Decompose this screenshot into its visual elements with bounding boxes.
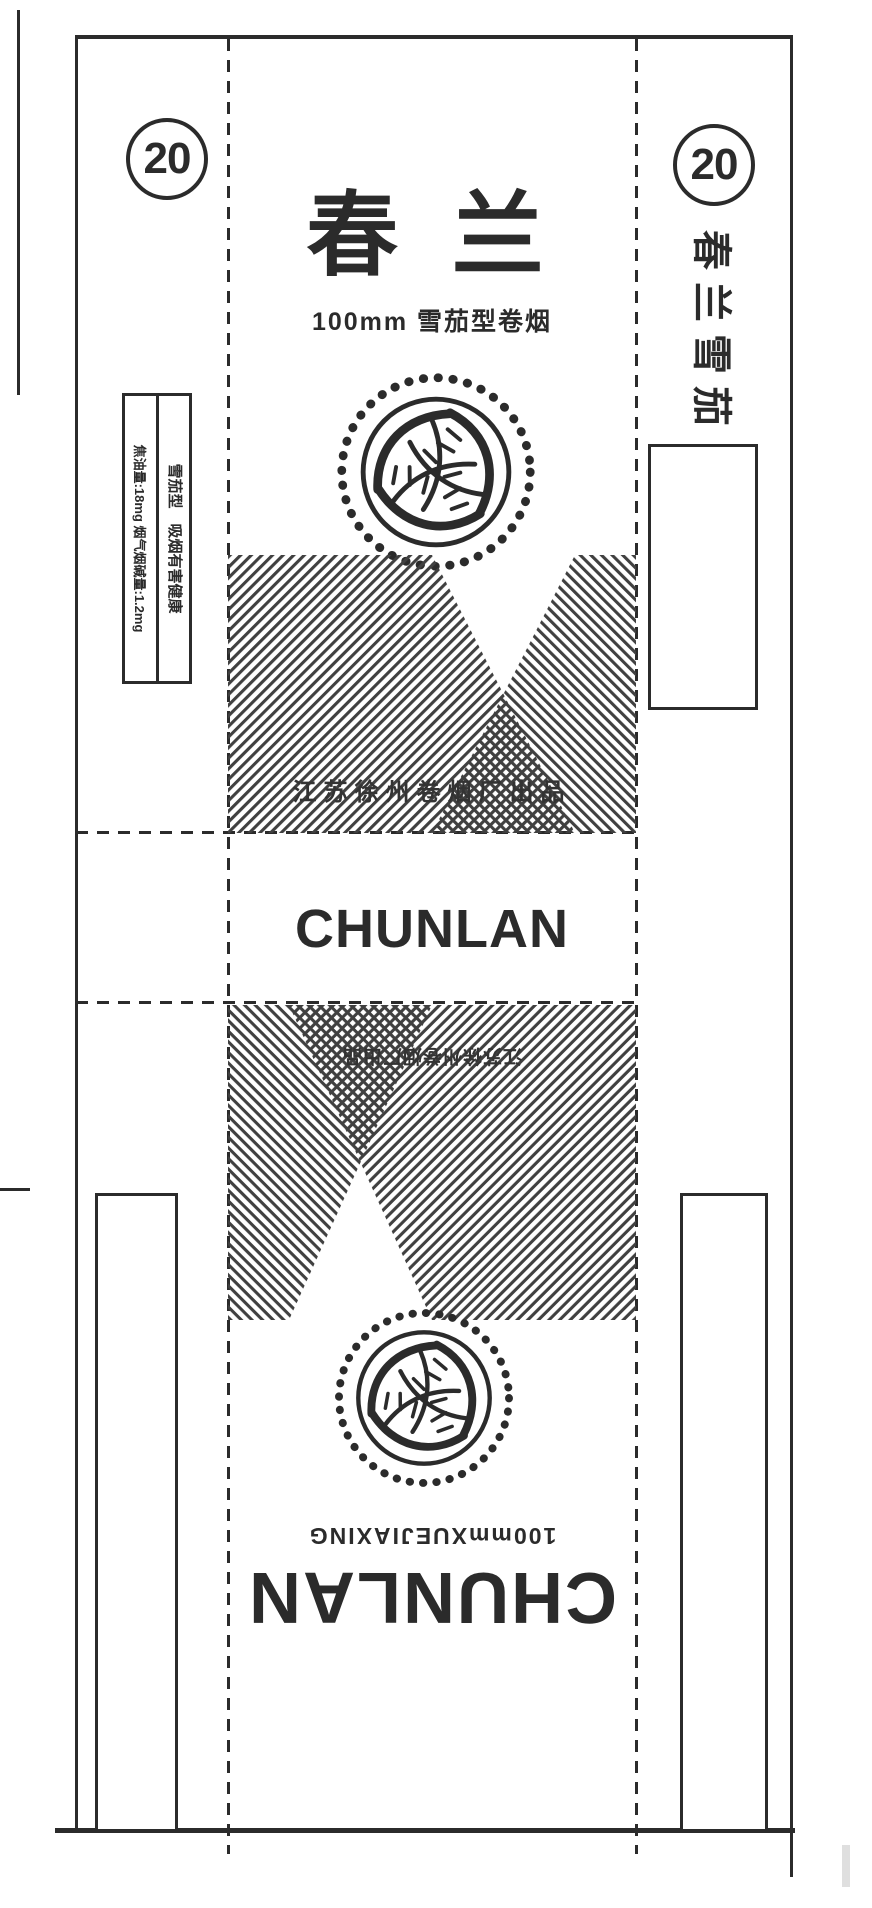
- fold-line-lower: [76, 1001, 636, 1004]
- left-trim-mark: [17, 10, 20, 395]
- package-dieline-scan: 20 20 春 兰 100mm 雪茄型卷烟: [0, 0, 872, 1908]
- scan-smudge: [842, 1845, 850, 1887]
- count-roundel-right: 20: [673, 124, 755, 206]
- left-cut-mark: [0, 1188, 30, 1191]
- bottom-panel-brand: CHUNLAN: [228, 898, 636, 960]
- spec-line-cn: 100mm 雪茄型卷烟: [228, 302, 636, 338]
- right-border: [790, 35, 793, 1877]
- tar-info-column: 焦油量:18mg 烟气烟碱量:1.2mg: [125, 399, 153, 678]
- brand-title-cn: 春 兰: [228, 188, 636, 285]
- orchid-emblem-top: [334, 370, 538, 574]
- orchid-emblem-bottom: [332, 1306, 516, 1490]
- side-flap-right: [680, 1193, 768, 1832]
- side-brand-vertical: 春兰雪茄: [688, 230, 734, 438]
- pack-count-right: 20: [691, 140, 738, 190]
- back-brand-title: CHUNLAN: [228, 1556, 636, 1638]
- back-spec-line: 100mmXUEJIAXING: [228, 1522, 636, 1549]
- top-border: [75, 35, 793, 39]
- warning-type-column: 雪茄型 吸烟有害健康: [159, 399, 189, 678]
- left-border: [75, 35, 78, 1832]
- stamp-area-rect: [648, 444, 758, 710]
- side-flap-left: [95, 1193, 178, 1832]
- factory-imprint-bottom: 江苏徐州卷烟厂出品: [268, 1044, 596, 1071]
- pack-count-left: 20: [144, 134, 191, 184]
- count-roundel-left: 20: [126, 118, 208, 200]
- factory-imprint-top: 江苏徐州卷烟厂出品: [248, 772, 616, 807]
